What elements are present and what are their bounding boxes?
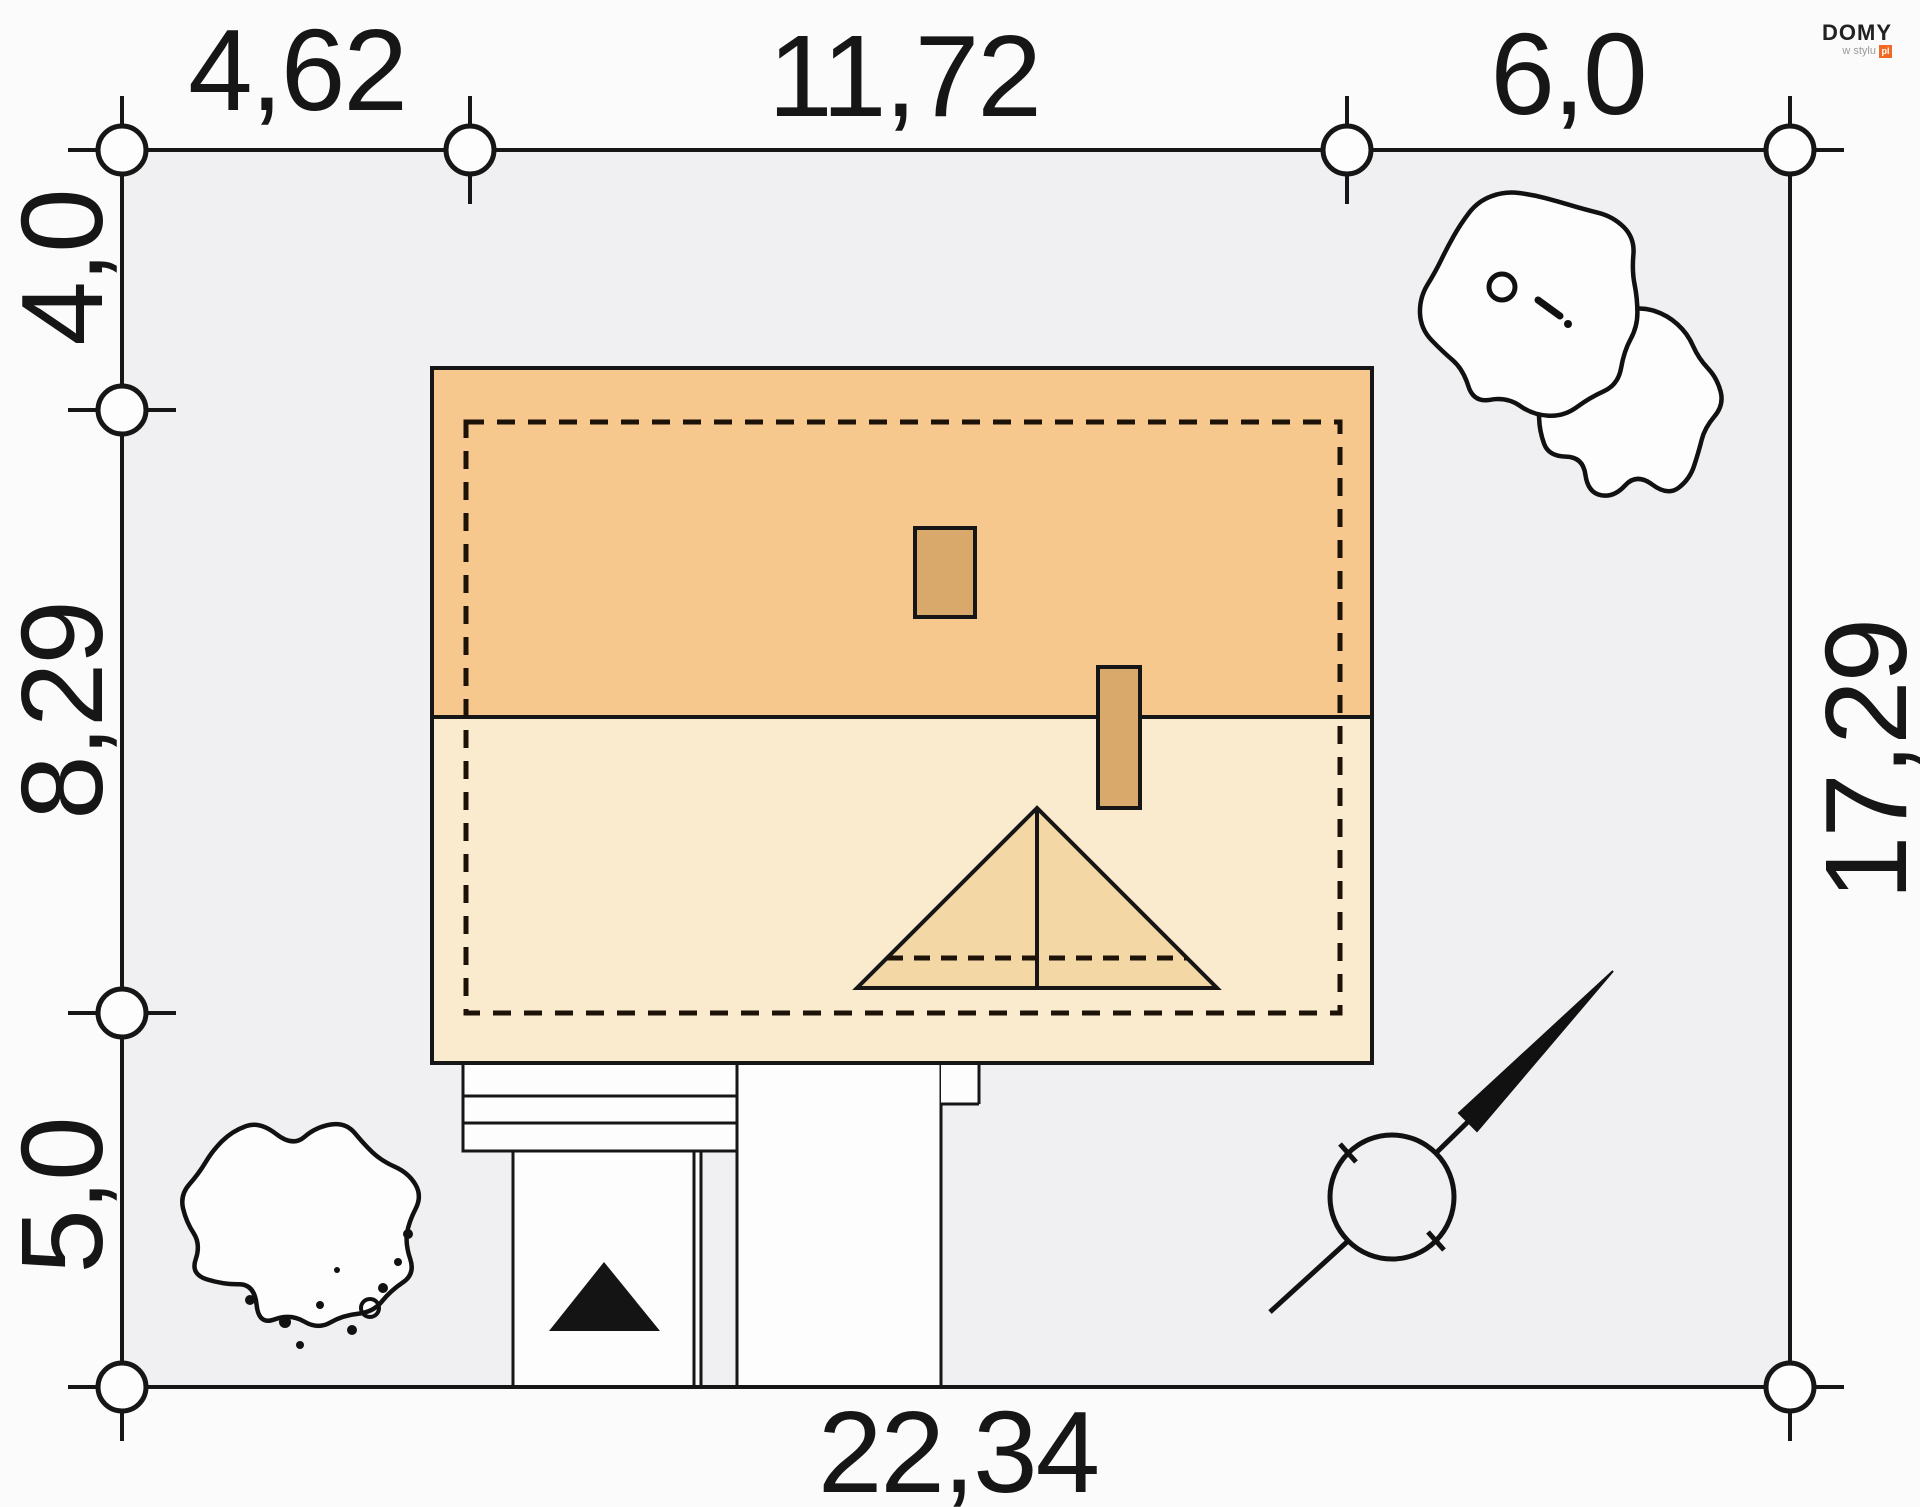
dimension-label-top-1: 4,62 <box>188 12 406 128</box>
dimension-label-bottom-1: 22,34 <box>818 1394 1098 1507</box>
dimension-label-left-2: 8,29 <box>4 602 120 820</box>
dimension-label-right-1: 17,29 <box>1808 620 1920 900</box>
logo-link[interactable]: DOMY w stylu pl <box>1822 22 1892 58</box>
chimney <box>1098 667 1140 808</box>
site-plan-drawing <box>0 0 1920 1507</box>
dimension-label-top-3: 6,0 <box>1490 16 1645 132</box>
site-plan-page: 4,62 11,72 6,0 4,0 8,29 5,0 17,29 22,34 … <box>0 0 1920 1507</box>
logo-pl-badge-icon: pl <box>1879 45 1892 58</box>
chimney <box>915 528 975 617</box>
entrance-stairs <box>463 1063 737 1151</box>
logo-tagline: w stylu <box>1842 46 1876 57</box>
logo-wordmark: DOMY <box>1822 22 1892 44</box>
dimension-label-top-2: 11,72 <box>768 18 1040 134</box>
dimension-label-left-1: 4,0 <box>4 190 120 345</box>
entrance-walkway <box>513 1151 701 1385</box>
dimension-label-left-3: 5,0 <box>4 1118 120 1273</box>
house-roof-plan <box>432 368 1372 1063</box>
